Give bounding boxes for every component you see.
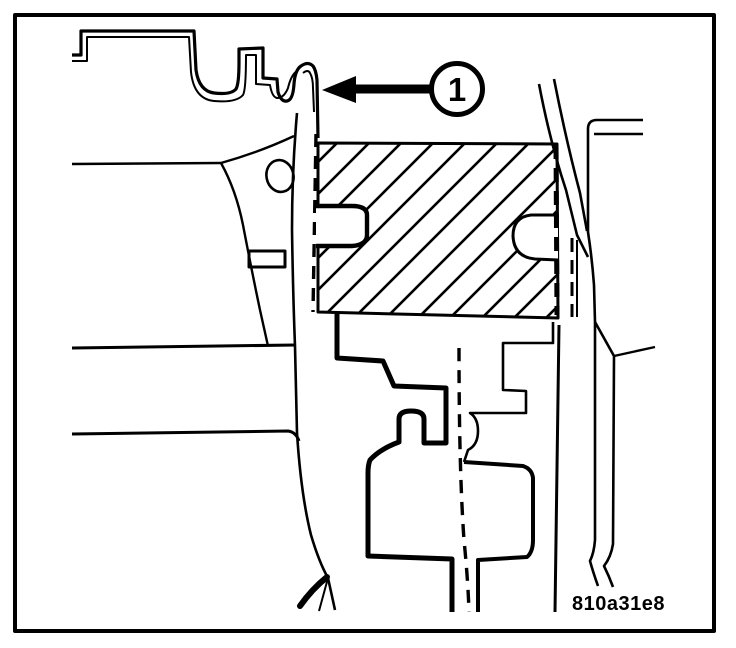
hatch-notch-right <box>513 215 558 260</box>
figure-code: 810a31e8 <box>572 593 665 615</box>
figure-page: 1 810a31e8 <box>0 0 736 648</box>
hatch-notch-left <box>316 206 367 246</box>
technical-diagram: 1 810a31e8 <box>0 0 736 648</box>
callout-number: 1 <box>448 71 466 108</box>
hatched-component <box>316 143 558 318</box>
